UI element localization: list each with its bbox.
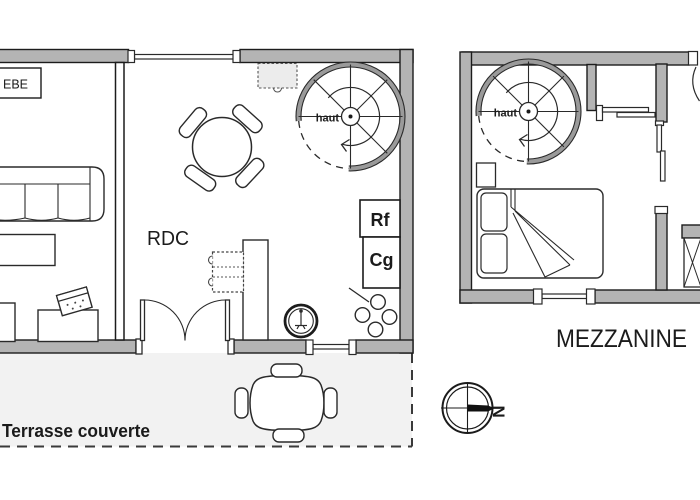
rdc-double-door [136,300,234,354]
stool [382,310,397,325]
rdc-room-label: RDC [147,228,189,250]
compass-rose-icon: N [441,382,508,434]
door-leaf [141,300,145,341]
rdc-left-room: EBE [0,68,104,342]
door-post [228,339,234,354]
mezz-wall-right-lower [656,213,667,290]
mezz-wall-left [460,52,472,303]
appliance-dishwasher [209,252,244,292]
stools [355,295,397,337]
rdc-window-top [128,51,240,63]
terrace-chair-left [235,388,248,418]
rdc-interior-wall [116,63,125,341]
floor-plan-page: Terrasse couverte [0,0,700,500]
rdc-wall-top-right [240,50,413,63]
rdc-plan: EBE [0,50,413,355]
floorplan-canvas: Terrasse couverte [0,0,700,500]
window-end-cap [587,289,596,304]
mezz-wall-top [462,52,689,65]
stool [355,308,370,323]
terrace-chair-right [324,388,337,418]
mezz-sliding-door-top [597,106,656,121]
kitchen-island [243,240,268,340]
mezz-wall-stub [682,225,700,238]
terrace-chair-bottom [273,429,304,442]
mezz-wall-right-upper [656,64,667,122]
window-end-cap [534,289,543,304]
wall-end-cap [655,207,668,214]
side-cabinet [0,303,15,342]
window-glass-line [135,55,234,60]
window-glass-line [313,345,349,350]
coffee-table [0,235,55,266]
terrace-table [250,376,324,431]
right-door-swing-arc [693,67,700,101]
mezzanine-label: MEZZANINE [556,325,687,353]
double-bed [477,189,603,278]
shower [684,238,700,287]
terrace-chair-top [271,364,302,377]
sofa [0,167,104,221]
mezz-wall-bottom-right [595,290,700,303]
door-swing-arc [185,300,226,341]
rdc-window-bottom [306,340,356,355]
door-leaf [226,300,230,341]
wall-end-cap [689,52,698,66]
dining-set [177,103,266,194]
overhead-cabinet [258,64,297,89]
stool [368,322,383,337]
terrace-label: Terrasse couverte [2,421,150,441]
sliding-panel [617,113,655,118]
mezz-interior-wall [587,65,596,111]
sliding-panel [657,125,662,152]
door-swing-arc [145,300,186,341]
terrace-zone: Terrasse couverte [0,353,412,447]
stairs-up-label: haut [494,108,518,120]
sliding-panel [603,108,649,113]
door-post [597,106,603,121]
counter-chamfer [349,288,369,302]
mezz-wall-bottom-left [460,290,535,303]
mezzanine-plan: haut MEZZANINE [460,52,700,354]
washbasin [285,305,317,337]
rdc-wall-bottom-middle [234,340,306,353]
crib-label: EBE [3,78,28,92]
compass-north-label: N [489,406,508,418]
mezz-window-bottom [534,289,596,304]
freezer-label: Cg [370,250,394,270]
window-end-cap [233,51,240,63]
cabinet-knob [274,88,282,92]
fridge-label: Rf [371,210,391,230]
rdc-wall-top-left [0,50,129,63]
window-glass-line [542,294,587,299]
round-table [193,118,252,177]
rdc-spiral-stairs: haut [296,62,405,171]
mezz-sliding-door-right [656,121,666,181]
rdc-wall-right [400,50,413,354]
pillow [481,234,507,273]
stairs-up-label: haut [316,113,340,125]
window-end-cap [128,51,135,63]
pillow [481,193,507,231]
door-post [136,339,142,354]
stool [371,295,386,310]
nightstand [477,163,496,187]
mezz-spiral-stairs: haut [476,59,581,164]
rdc-wall-bottom-right [356,340,413,353]
window-end-cap [306,340,313,355]
sliding-panel [661,151,666,181]
window-end-cap [349,340,356,355]
sofa-outline [0,167,104,221]
